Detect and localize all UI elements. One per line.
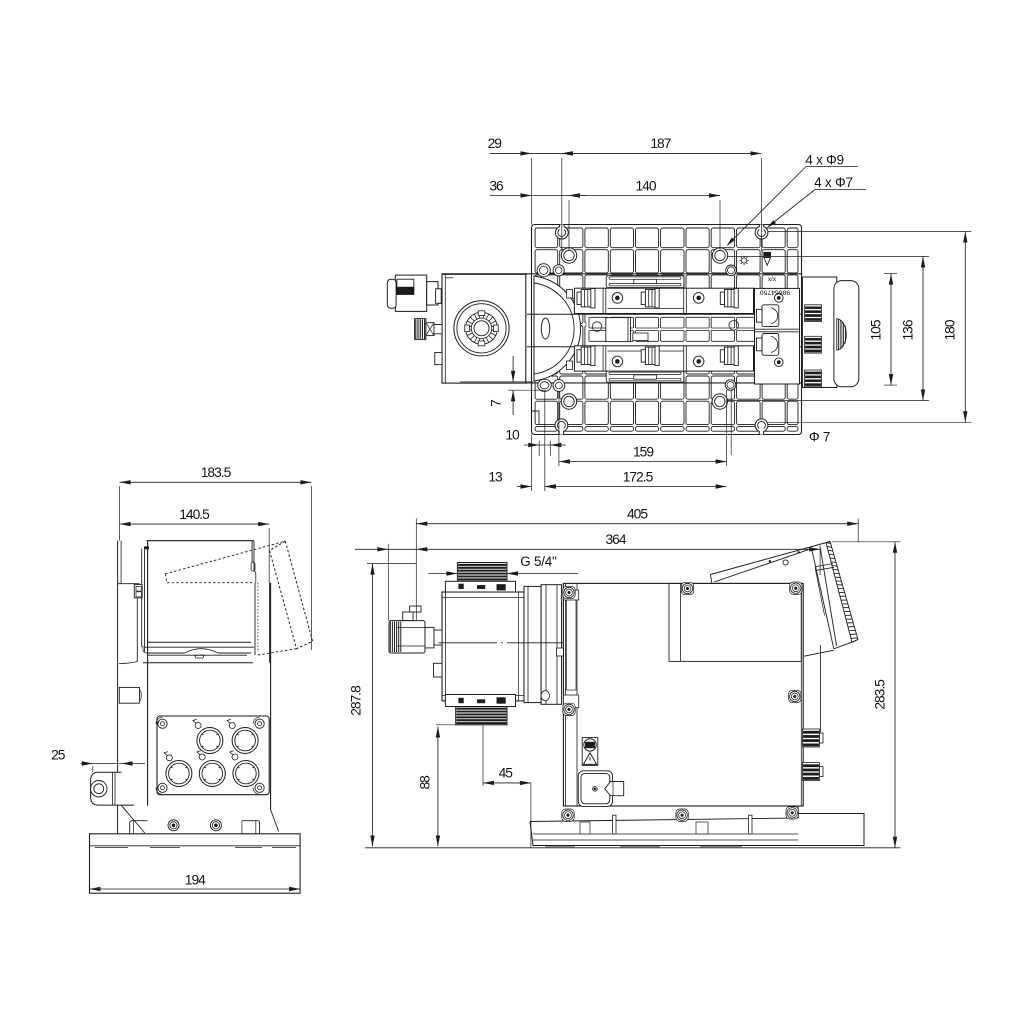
svg-text:159: 159 — [633, 445, 654, 460]
svg-text:7: 7 — [489, 400, 504, 407]
svg-text:G 5/4'': G 5/4'' — [520, 554, 556, 569]
svg-text:194: 194 — [185, 873, 206, 888]
svg-text:4 x Φ7: 4 x Φ7 — [814, 175, 853, 190]
svg-text:98664750: 98664750 — [760, 289, 790, 296]
svg-text:29: 29 — [488, 136, 503, 151]
svg-text:36: 36 — [489, 178, 504, 193]
svg-text:140: 140 — [635, 178, 656, 193]
svg-text:Φ 7: Φ 7 — [809, 430, 830, 445]
svg-text:140.5: 140.5 — [179, 507, 210, 522]
svg-text:287.8: 287.8 — [349, 685, 364, 716]
svg-text:180: 180 — [943, 319, 958, 340]
svg-text:10: 10 — [505, 428, 520, 443]
svg-text:136: 136 — [901, 319, 916, 340]
svg-text:105: 105 — [869, 319, 884, 340]
svg-text:88: 88 — [418, 775, 433, 790]
svg-text:13: 13 — [488, 469, 503, 484]
svg-text:25: 25 — [51, 748, 66, 763]
svg-text:283.5: 283.5 — [873, 679, 888, 710]
svg-text:183.5: 183.5 — [201, 465, 232, 480]
svg-text:4 x Φ9: 4 x Φ9 — [805, 153, 844, 168]
svg-text:45: 45 — [499, 766, 514, 781]
svg-text:187: 187 — [650, 136, 670, 151]
svg-text:172.5: 172.5 — [623, 469, 654, 484]
svg-text:x/x: x/x — [768, 276, 777, 283]
svg-text:405: 405 — [627, 507, 648, 522]
svg-text:364: 364 — [605, 532, 626, 547]
